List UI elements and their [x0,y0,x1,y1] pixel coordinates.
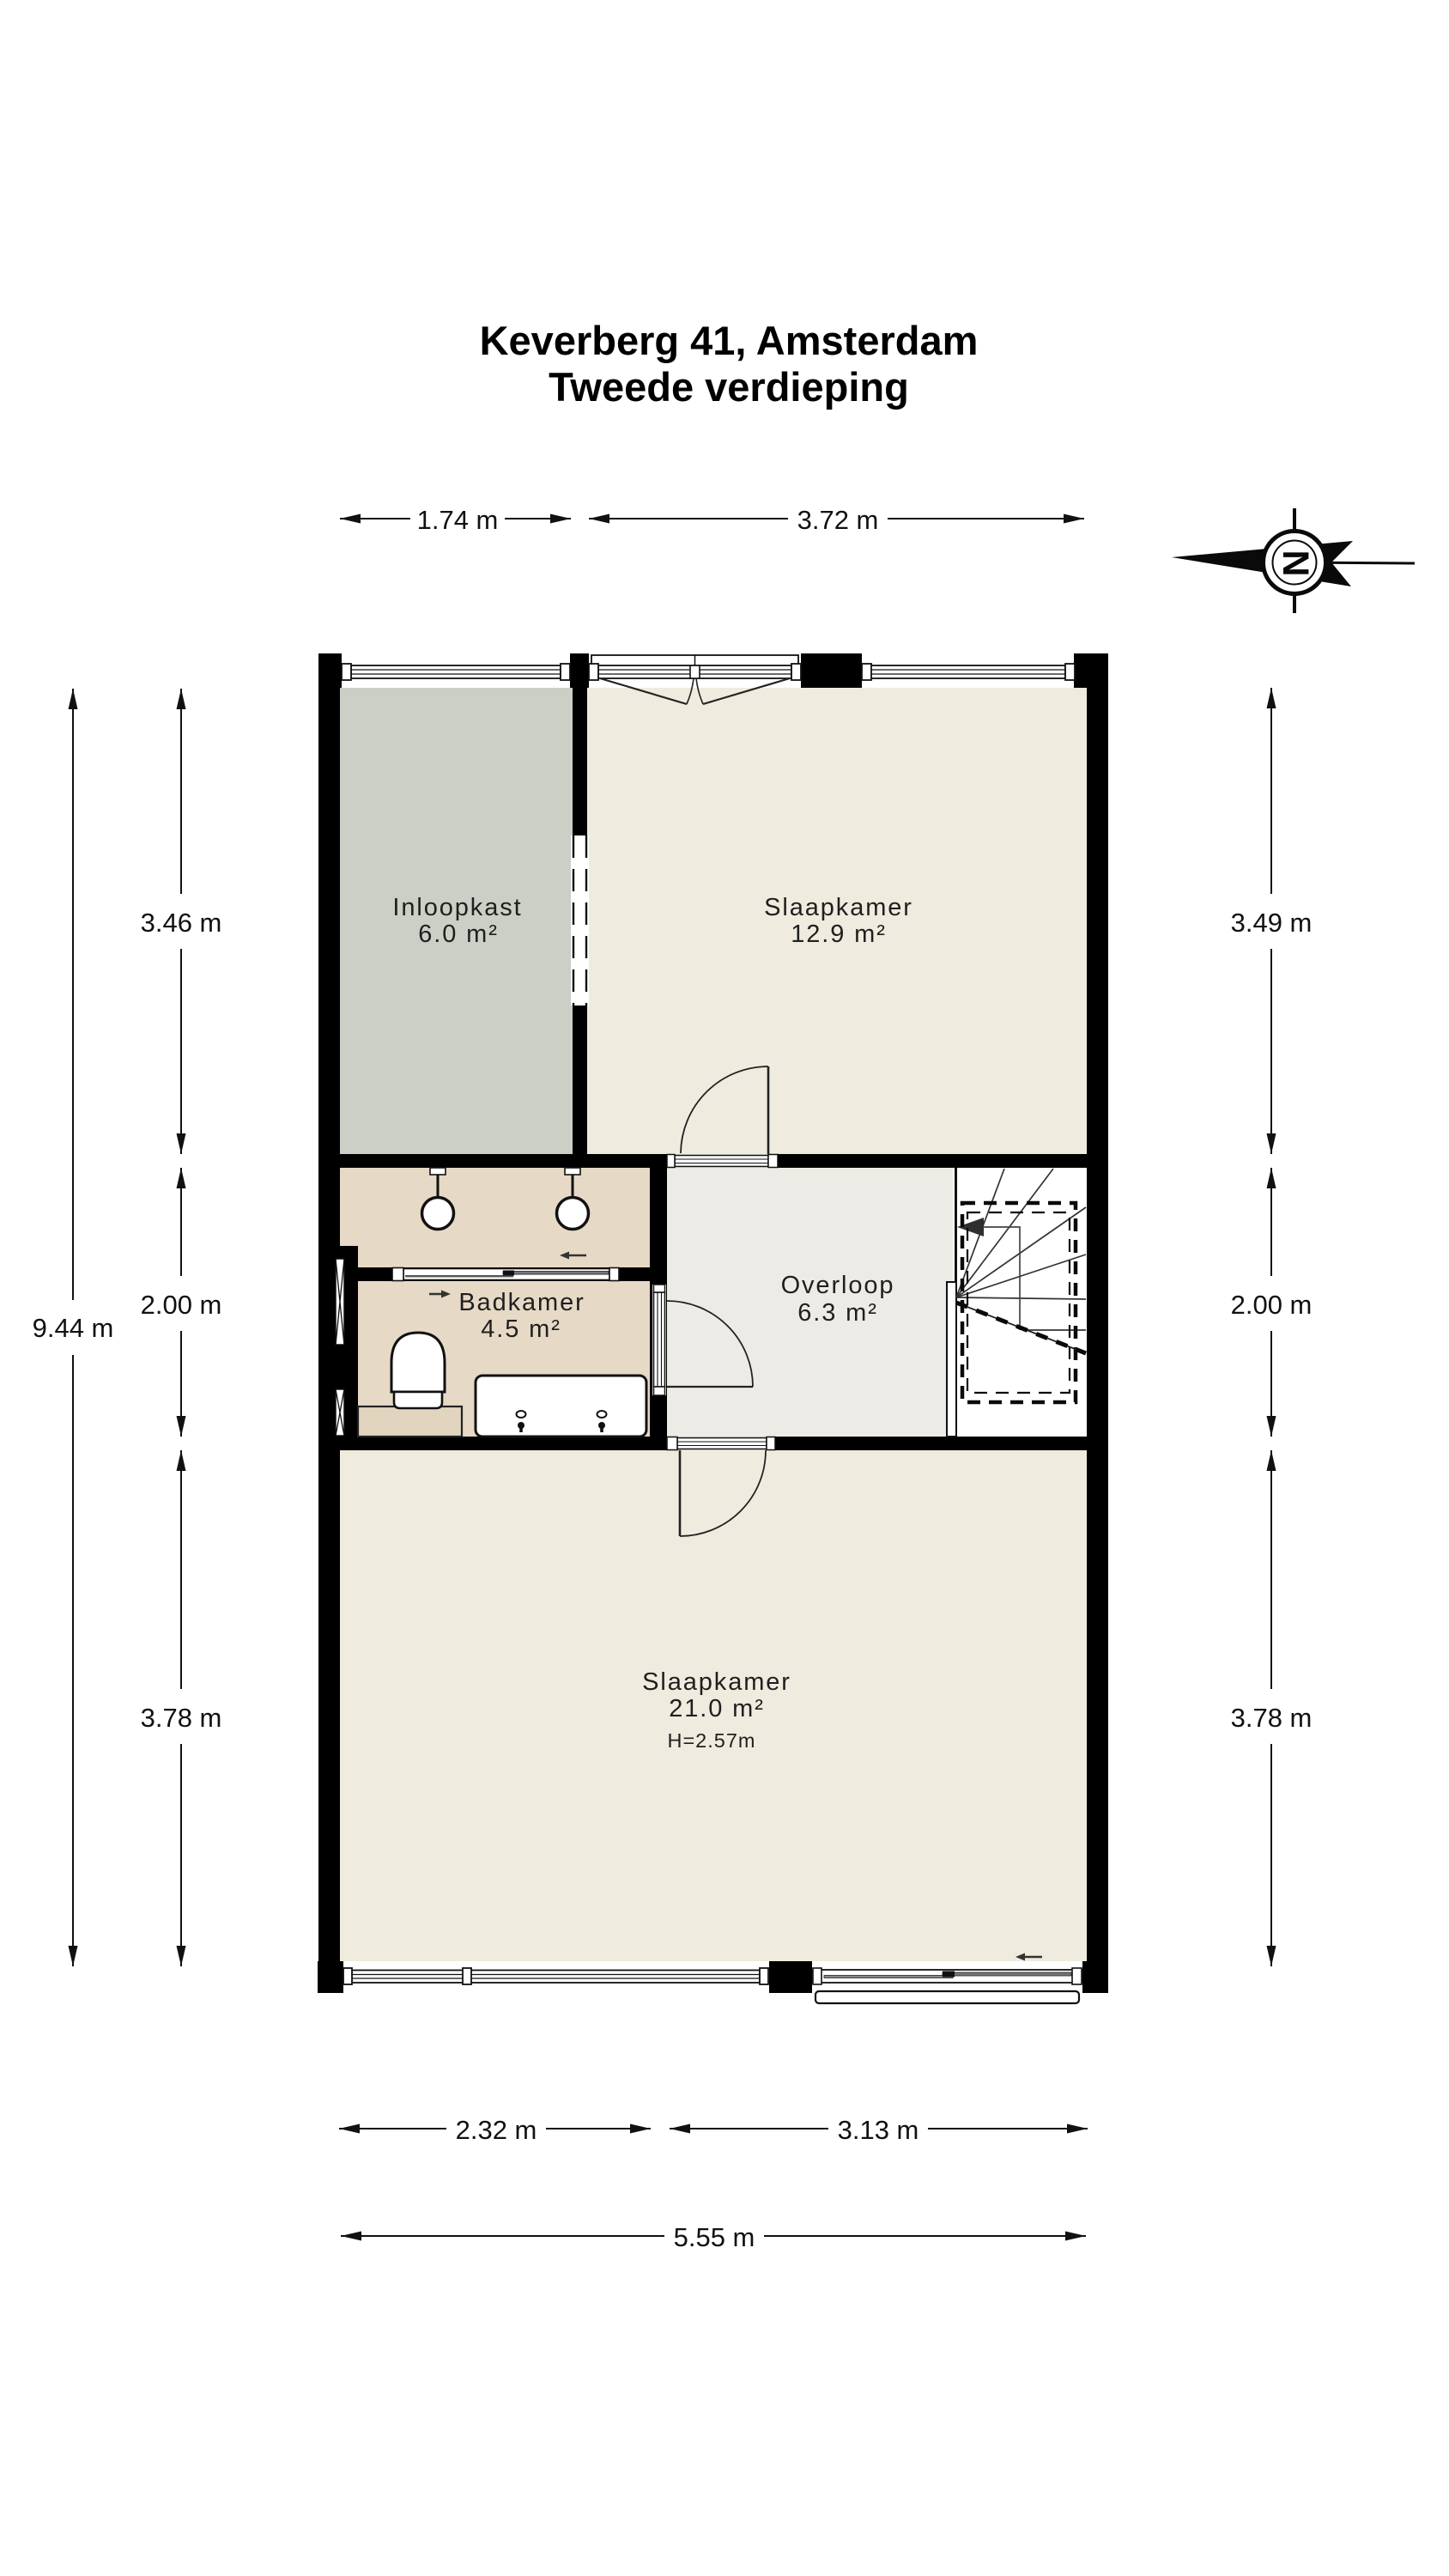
svg-text:3.78 m: 3.78 m [1231,1703,1313,1733]
svg-text:Overloop: Overloop [781,1272,895,1299]
svg-text:3.13 m: 3.13 m [838,2115,919,2145]
svg-text:Badkamer: Badkamer [458,1289,585,1316]
svg-text:3.72 m: 3.72 m [797,505,879,535]
svg-text:3.78 m: 3.78 m [141,1703,222,1733]
svg-text:6.0 m²: 6.0 m² [418,920,499,948]
svg-text:4.5 m²: 4.5 m² [481,1315,561,1343]
svg-text:1.74 m: 1.74 m [417,505,499,535]
svg-text:5.55 m: 5.55 m [674,2222,755,2252]
svg-text:2.32 m: 2.32 m [456,2115,537,2145]
svg-text:Keverberg 41, Amsterdam: Keverberg 41, Amsterdam [480,318,979,363]
svg-text:3.46 m: 3.46 m [141,908,222,938]
svg-text:H=2.57m: H=2.57m [667,1729,755,1752]
svg-text:Inloopkast: Inloopkast [392,894,522,921]
svg-text:Tweede verdieping: Tweede verdieping [549,364,909,410]
svg-text:2.00 m: 2.00 m [141,1290,222,1320]
svg-text:Slaapkamer: Slaapkamer [642,1668,791,1696]
svg-text:12.9 m²: 12.9 m² [791,920,887,948]
svg-text:2.00 m: 2.00 m [1231,1290,1313,1320]
svg-text:Slaapkamer: Slaapkamer [764,894,913,921]
svg-text:21.0 m²: 21.0 m² [669,1695,765,1722]
svg-text:9.44 m: 9.44 m [33,1313,114,1343]
svg-text:6.3 m²: 6.3 m² [797,1299,878,1327]
svg-text:3.49 m: 3.49 m [1231,908,1313,938]
svg-text:N: N [1275,550,1316,576]
